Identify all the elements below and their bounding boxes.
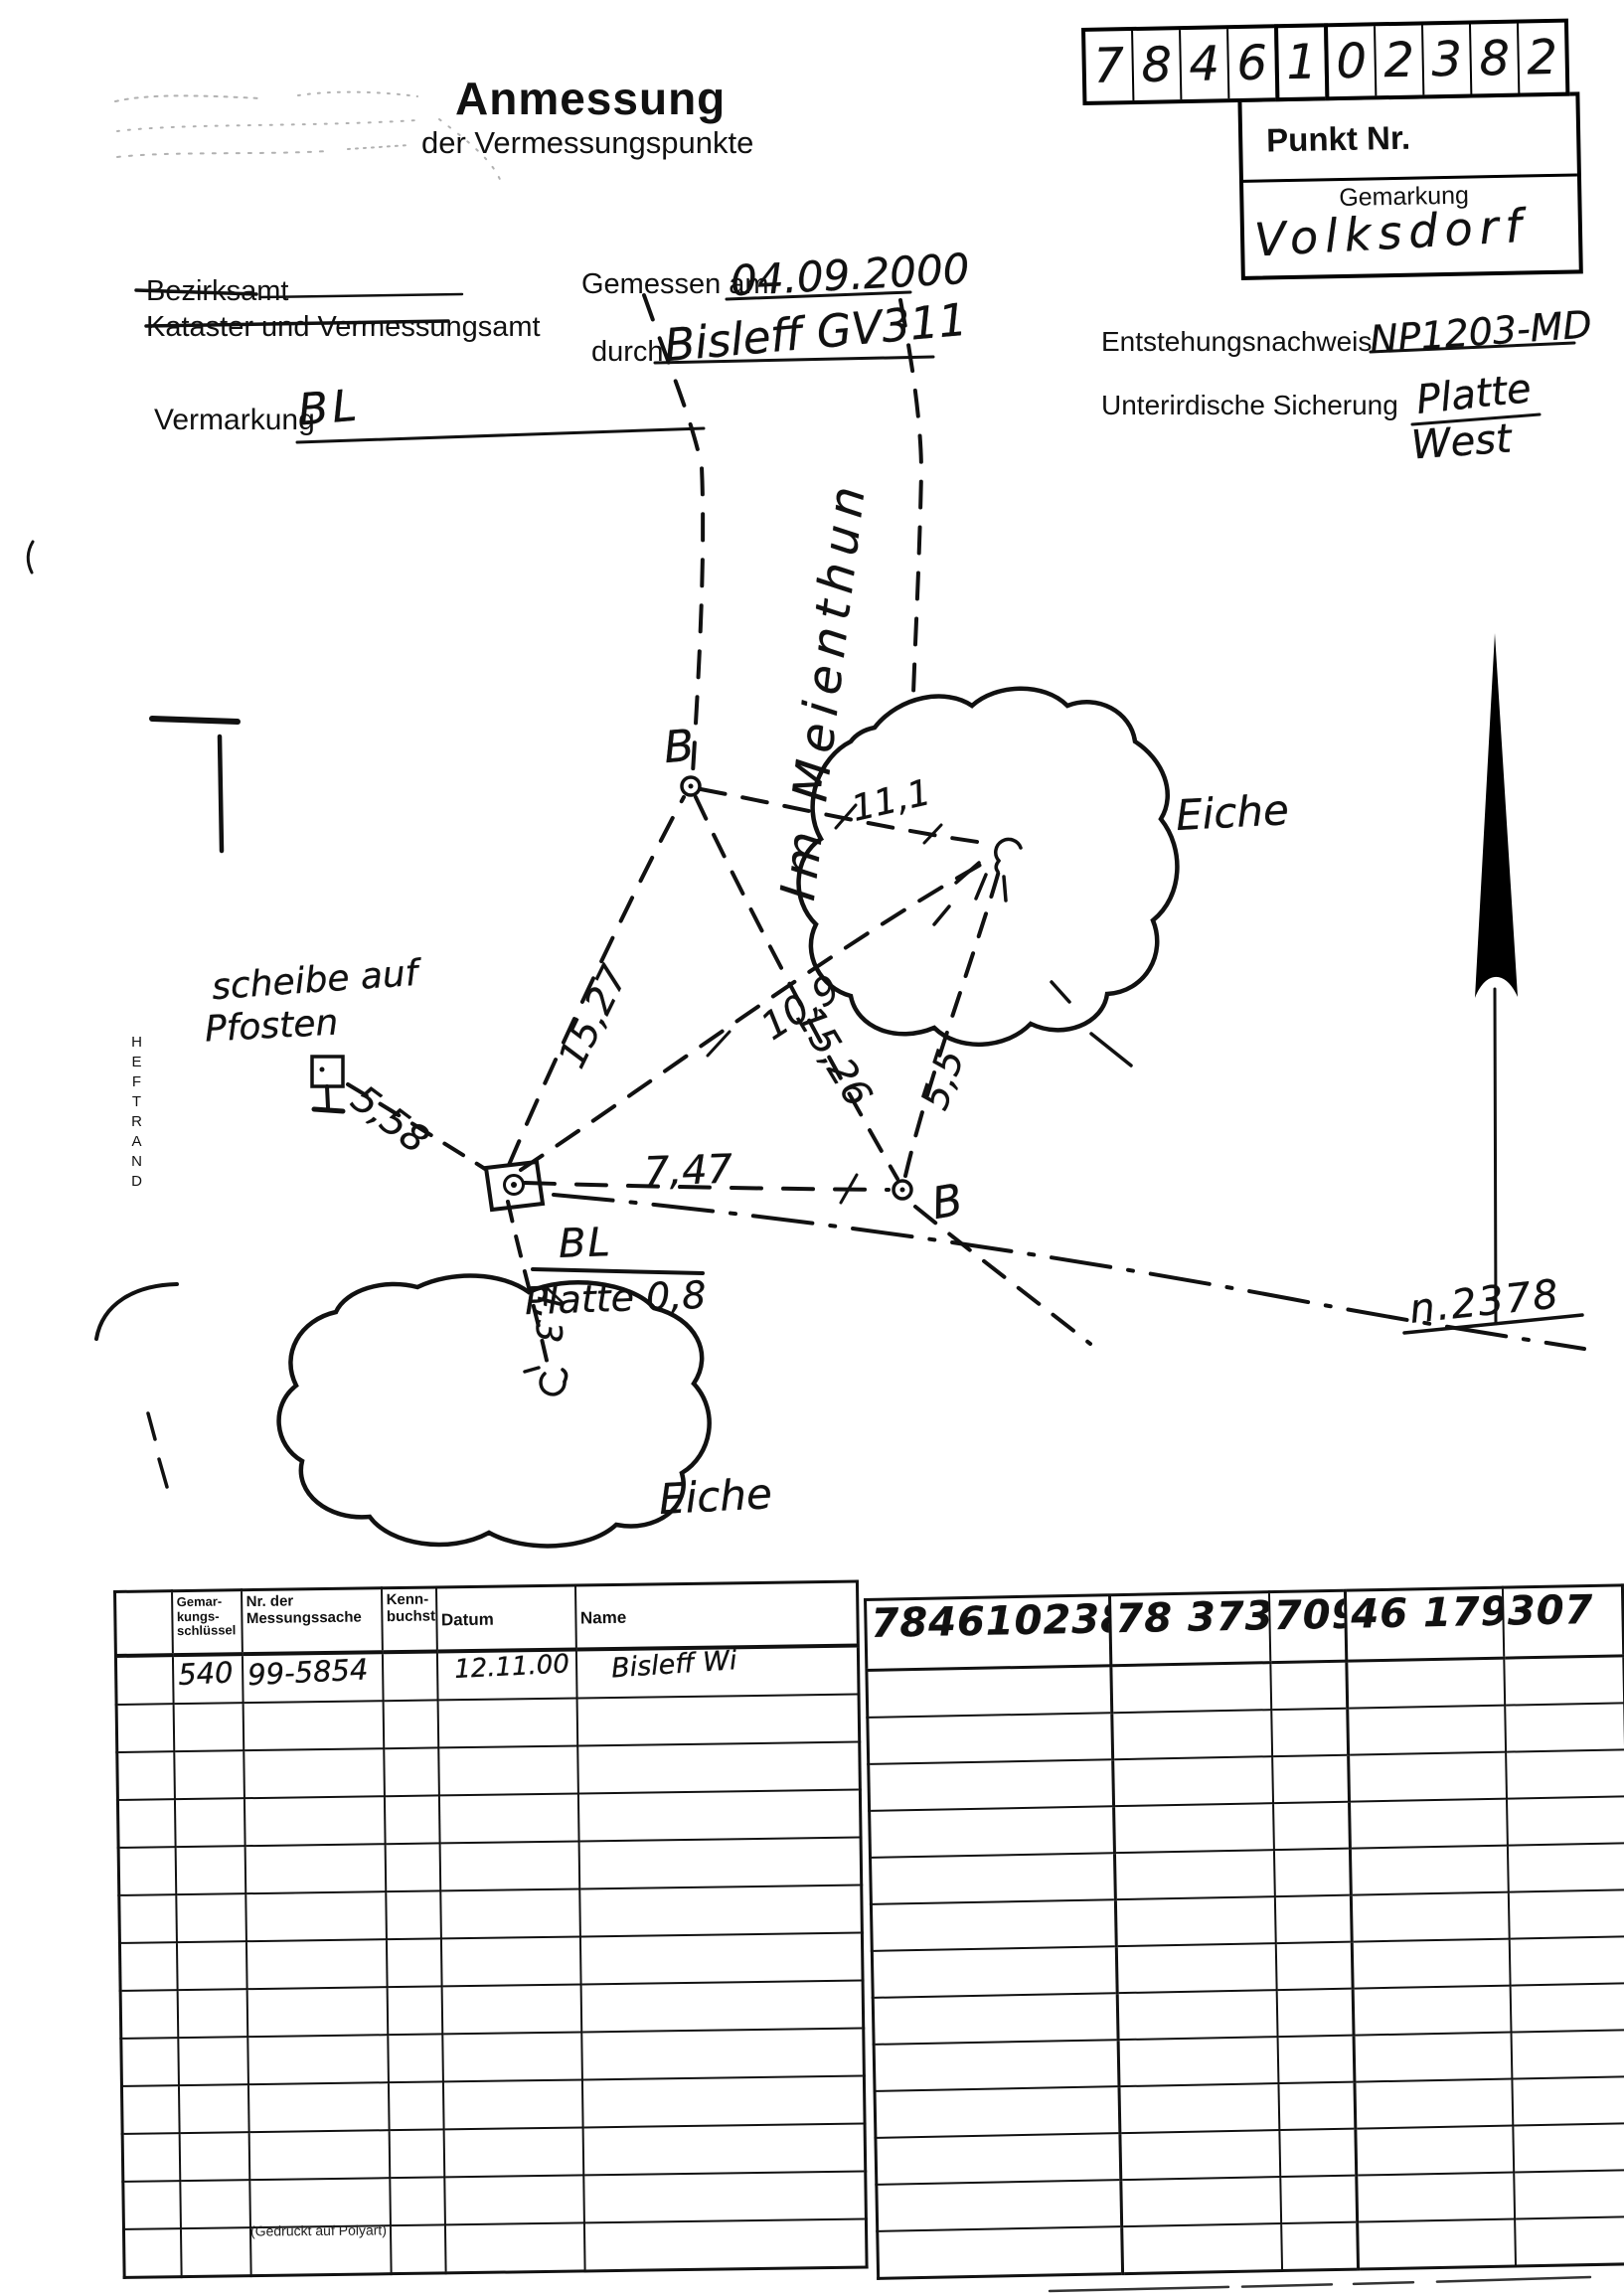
empty-cell: [245, 1891, 387, 1941]
empty-cell: [389, 2129, 444, 2178]
empty-cell: [1514, 2170, 1624, 2218]
empty-cell: [1280, 2176, 1358, 2223]
center-point-label-line1: BL: [558, 1220, 612, 1267]
empty-cell: [386, 1890, 441, 1939]
empty-cell: [878, 2226, 1123, 2278]
measured-by-label: durch: [591, 336, 664, 369]
empty-cell: [249, 2178, 391, 2227]
margin-arc-small: [28, 542, 33, 573]
cell-blank: [115, 1655, 173, 1705]
empty-cell: [173, 1703, 244, 1751]
empty-cell: [390, 2224, 445, 2273]
page-title: Anmessung: [455, 72, 726, 125]
empty-cell: [438, 1745, 578, 1795]
cell-point-number: 7846102382: [866, 1595, 1111, 1671]
left-table-header-blank: [115, 1591, 173, 1656]
bl-fraction-bar: [533, 1269, 703, 1273]
empty-cell: [388, 2034, 443, 2082]
empty-cell: [121, 2038, 179, 2086]
vermarkung-value: BL: [296, 380, 363, 435]
gemarkung-value: Volksdorf: [1253, 199, 1530, 267]
entstehungsnachweis-label: Entstehungsnachweis: [1101, 326, 1372, 358]
empty-cell: [1351, 1892, 1509, 1942]
empty-cell: [876, 2133, 1121, 2185]
empty-cell: [1509, 1936, 1624, 1985]
empty-cell: [442, 2079, 582, 2129]
digit-cell: 2: [1374, 25, 1422, 95]
empty-cell: [874, 2040, 1119, 2091]
empty-cell: [1277, 2036, 1355, 2083]
sicherung-label: Unterirdische Sicherung: [1101, 390, 1398, 421]
point-b-top-label: B: [662, 721, 697, 773]
digit-cell: 1: [1278, 27, 1325, 97]
empty-cell: [243, 1701, 384, 1750]
scan-artifact-line: [1050, 2277, 1590, 2291]
punkt-nr-label: Punkt Nr.: [1241, 95, 1576, 182]
empty-cell: [119, 1894, 177, 1943]
digit-group-3: 0 2 3 8 2: [1324, 19, 1569, 101]
margin-strokes: [96, 1284, 177, 1487]
cell-messungssache: 99-5854: [242, 1652, 383, 1703]
vermarkung-label: Vermarkung: [154, 404, 315, 437]
empty-cell: [583, 2218, 867, 2270]
digit-cell: 4: [1179, 29, 1227, 99]
empty-cell: [180, 2180, 250, 2228]
empty-cell: [177, 1989, 247, 2038]
empty-cell: [1119, 2083, 1279, 2133]
empty-cell: [1117, 1990, 1277, 2040]
empty-cell: [117, 1799, 175, 1848]
tree-right-outline: [799, 689, 1178, 1045]
cell-easting-1: 78 373: [1109, 1592, 1269, 1666]
empty-cell: [579, 1932, 863, 1984]
empty-cell: [440, 1888, 580, 1938]
left-table-body: 540 99-5854 12.11.00 Bisleff Wi: [115, 1645, 867, 2277]
empty-cell: [117, 1751, 175, 1800]
empty-cell: [581, 2028, 865, 2079]
empty-cell: [1121, 2177, 1281, 2226]
empty-cell: [120, 1990, 178, 2039]
empty-cell: [244, 1796, 385, 1846]
empty-cell: [175, 1846, 245, 1894]
empty-cell: [1118, 2037, 1278, 2086]
empty-cell: [1122, 2223, 1282, 2274]
empty-cell: [1115, 1896, 1275, 1946]
empty-cell: [1510, 1983, 1624, 2032]
point-b-right-symbol: [893, 1181, 911, 1199]
cell-gemarkungsschluessel: 540: [172, 1654, 243, 1704]
digit-cell: 8: [1469, 24, 1518, 94]
empty-cell: [583, 2171, 867, 2222]
empty-cell: [383, 1700, 438, 1748]
empty-cell: [123, 2228, 181, 2277]
empty-cell: [439, 1841, 579, 1890]
tree-bottom-trunk: [525, 1368, 567, 1394]
empty-cell: [122, 2133, 180, 2182]
empty-cell: [1271, 1709, 1349, 1756]
heftrand-label: HEFTRAND: [128, 1034, 145, 1193]
empty-cell: [872, 1946, 1117, 1998]
empty-cell: [867, 1666, 1112, 1718]
empty-cell: [1281, 2222, 1359, 2271]
empty-cell: [174, 1798, 244, 1847]
empty-cell: [578, 1837, 862, 1888]
empty-cell: [443, 2127, 583, 2177]
empty-cell: [176, 1941, 246, 1990]
cell-kennbuchst: [382, 1651, 437, 1701]
empty-cell: [1279, 2129, 1357, 2177]
empty-cell: [245, 1939, 387, 1989]
digit-cell: 3: [1421, 25, 1470, 95]
digit-group-1: 7 8 4 6: [1081, 24, 1279, 105]
empty-cell: [1506, 1796, 1624, 1845]
page-subtitle: der Vermessungspunkte: [421, 125, 753, 161]
street-edge-right: [900, 300, 921, 694]
cell-northing-2: 307: [1502, 1585, 1623, 1658]
digit-group-2: 1: [1274, 23, 1329, 101]
empty-cell: [877, 2180, 1122, 2231]
empty-cell: [1270, 1661, 1348, 1710]
center-point-symbol: [486, 1162, 543, 1210]
left-table: Gemar- kungs- schlüssel Nr. der Messungs…: [113, 1580, 869, 2279]
empty-cell: [1511, 2030, 1624, 2078]
empty-cell: [1350, 1846, 1508, 1895]
empty-cell: [1354, 2033, 1512, 2082]
empty-cell: [247, 2082, 389, 2132]
empty-cell: [442, 2032, 582, 2081]
empty-cell: [384, 1747, 439, 1796]
empty-cell: [576, 1694, 860, 1745]
empty-cell: [1272, 1755, 1350, 1803]
empty-cell: [868, 1713, 1113, 1764]
digit-cell: 2: [1517, 23, 1565, 93]
empty-cell: [1506, 1749, 1624, 1798]
empty-cell: [581, 2075, 865, 2127]
cell-name: Bisleff Wi: [575, 1645, 859, 1698]
cell-easting-2: 709: [1268, 1590, 1346, 1662]
line-b-right-to-tree: [905, 864, 1001, 1176]
left-table-header-gemarkungsschluessel: Gemar- kungs- schlüssel: [172, 1590, 243, 1655]
empty-cell: [873, 1993, 1118, 2045]
empty-cell: [1114, 1850, 1274, 1899]
empty-cell: [123, 2181, 181, 2229]
empty-cell: [247, 2035, 389, 2084]
empty-cell: [1515, 2216, 1624, 2266]
empty-cell: [390, 2177, 445, 2225]
empty-cell: [1116, 1943, 1276, 1993]
point-b-top-symbol: [682, 777, 700, 795]
empty-cell: [178, 2037, 248, 2085]
empty-cell: [1112, 1710, 1272, 1759]
digit-cell: 8: [1131, 30, 1180, 100]
empty-cell: [116, 1704, 174, 1752]
sicherung-value-line2: West: [1410, 416, 1514, 469]
right-table: 7846102382 78 373 709 46 179 307: [864, 1583, 1624, 2280]
empty-cell: [1512, 2076, 1624, 2125]
empty-cell: [244, 1844, 386, 1893]
empty-cell: [437, 1698, 577, 1747]
empty-cell: [1357, 2173, 1515, 2222]
empty-cell: [577, 1789, 861, 1841]
measurement-square-bright: 7,47: [643, 1146, 733, 1195]
empty-cell: [869, 1759, 1114, 1811]
empty-cell: [1273, 1802, 1351, 1850]
empty-cell: [179, 2132, 249, 2181]
empty-table-row: [123, 2218, 867, 2277]
empty-cell: [174, 1750, 244, 1799]
empty-cell: [384, 1795, 439, 1844]
tree-bottom-label: Eiche: [658, 1469, 773, 1524]
empty-cell: [388, 2081, 443, 2130]
empty-cell: [582, 2123, 866, 2175]
gemarkung-box: Gemarkung Volksdorf: [1243, 176, 1579, 275]
empty-cell: [1120, 2130, 1280, 2180]
empty-cell: [1508, 1889, 1624, 1938]
empty-cell: [444, 2175, 584, 2224]
office-line2: Kataster und Vermessungsamt: [146, 311, 541, 344]
empty-cell: [1273, 1849, 1351, 1896]
cell-northing-1: 46 179: [1345, 1587, 1503, 1661]
empty-cell: [875, 2086, 1120, 2138]
empty-cell: [444, 2222, 584, 2272]
post-symbol: [312, 1057, 343, 1111]
empty-cell: [244, 1748, 385, 1798]
right-table-body: 7846102382 78 373 709 46 179 307: [866, 1585, 1624, 2279]
empty-cell: [1113, 1756, 1273, 1806]
office-line1: Bezirksamt: [146, 275, 288, 308]
cell-datum: 12.11.00: [436, 1649, 576, 1700]
left-table-header-messungssache: Nr. der Messungssache: [242, 1588, 383, 1654]
empty-cell: [1352, 1939, 1510, 1989]
empty-cell: [438, 1793, 578, 1843]
empty-cell: [1350, 1799, 1508, 1849]
empty-cell: [1278, 2082, 1356, 2130]
empty-cell: [178, 2084, 248, 2133]
empty-cell: [579, 1885, 863, 1936]
empty-cell: [248, 2130, 390, 2180]
scanned-survey-form: Anmessung der Vermessungspunkte Bezirksa…: [0, 0, 1624, 2296]
digit-cell: 0: [1328, 26, 1375, 96]
empty-cell: [1513, 2123, 1624, 2172]
measurement-square-tree-bottom: 4,3: [527, 1285, 570, 1344]
empty-cell: [1504, 1656, 1624, 1706]
empty-cell: [871, 1899, 1116, 1951]
empty-cell: [1347, 1658, 1505, 1709]
empty-cell: [1358, 2219, 1516, 2270]
empty-cell: [385, 1843, 440, 1891]
empty-cell: [871, 1853, 1116, 1904]
north-arrow: [1475, 633, 1518, 1324]
blank-line-bezirksamt: [261, 294, 462, 297]
left-table-header-name: Name: [574, 1581, 858, 1649]
digit-cell: 6: [1226, 28, 1275, 98]
empty-cell: [577, 1741, 861, 1793]
empty-cell: [119, 1942, 177, 1991]
empty-cell: [180, 2227, 250, 2276]
empty-cell: [1114, 1803, 1274, 1853]
empty-cell: [440, 1936, 580, 1986]
empty-cell: [1348, 1706, 1506, 1755]
empty-cell: [1276, 1989, 1354, 2037]
punkt-digit-row: 7 8 4 6 1 0 2 3 8 2: [1081, 18, 1579, 105]
empty-cell: [1353, 1986, 1511, 2036]
post-label-line2: Pfosten: [204, 1003, 339, 1051]
empty-cell: [1355, 2079, 1513, 2129]
corner-mark: [152, 719, 238, 851]
empty-cell: [441, 1984, 581, 2034]
empty-cell: [246, 1987, 388, 2037]
empty-cell: [121, 2085, 179, 2134]
left-table-header-kennbuchst: Kenn- buchst.: [381, 1587, 436, 1652]
empty-cell: [580, 1980, 864, 2032]
left-table-header-datum: Datum: [435, 1585, 575, 1651]
tree-right-label: Eiche: [1175, 785, 1290, 840]
empty-cell: [1111, 1663, 1271, 1714]
punkt-label-box: Punkt Nr. Gemarkung Volksdorf: [1237, 91, 1582, 280]
empty-cell: [1356, 2126, 1514, 2176]
empty-cell: [870, 1806, 1115, 1858]
empty-cell: [386, 1938, 441, 1987]
empty-cell: [1507, 1843, 1624, 1891]
footer-note: (Gedruckt auf Polyart): [250, 2221, 387, 2238]
empty-cell: [118, 1847, 176, 1895]
empty-cell: [1274, 1895, 1352, 1943]
digit-cell: 7: [1085, 31, 1132, 101]
empty-cell: [387, 1986, 442, 2035]
empty-cell: [1275, 1942, 1353, 1990]
punkt-number-box: 7 8 4 6 1 0 2 3 8 2 Punkt Nr. Gemarkung …: [1081, 18, 1583, 283]
empty-cell: [176, 1893, 246, 1942]
empty-cell: [1505, 1703, 1624, 1751]
empty-cell: [1349, 1752, 1507, 1802]
